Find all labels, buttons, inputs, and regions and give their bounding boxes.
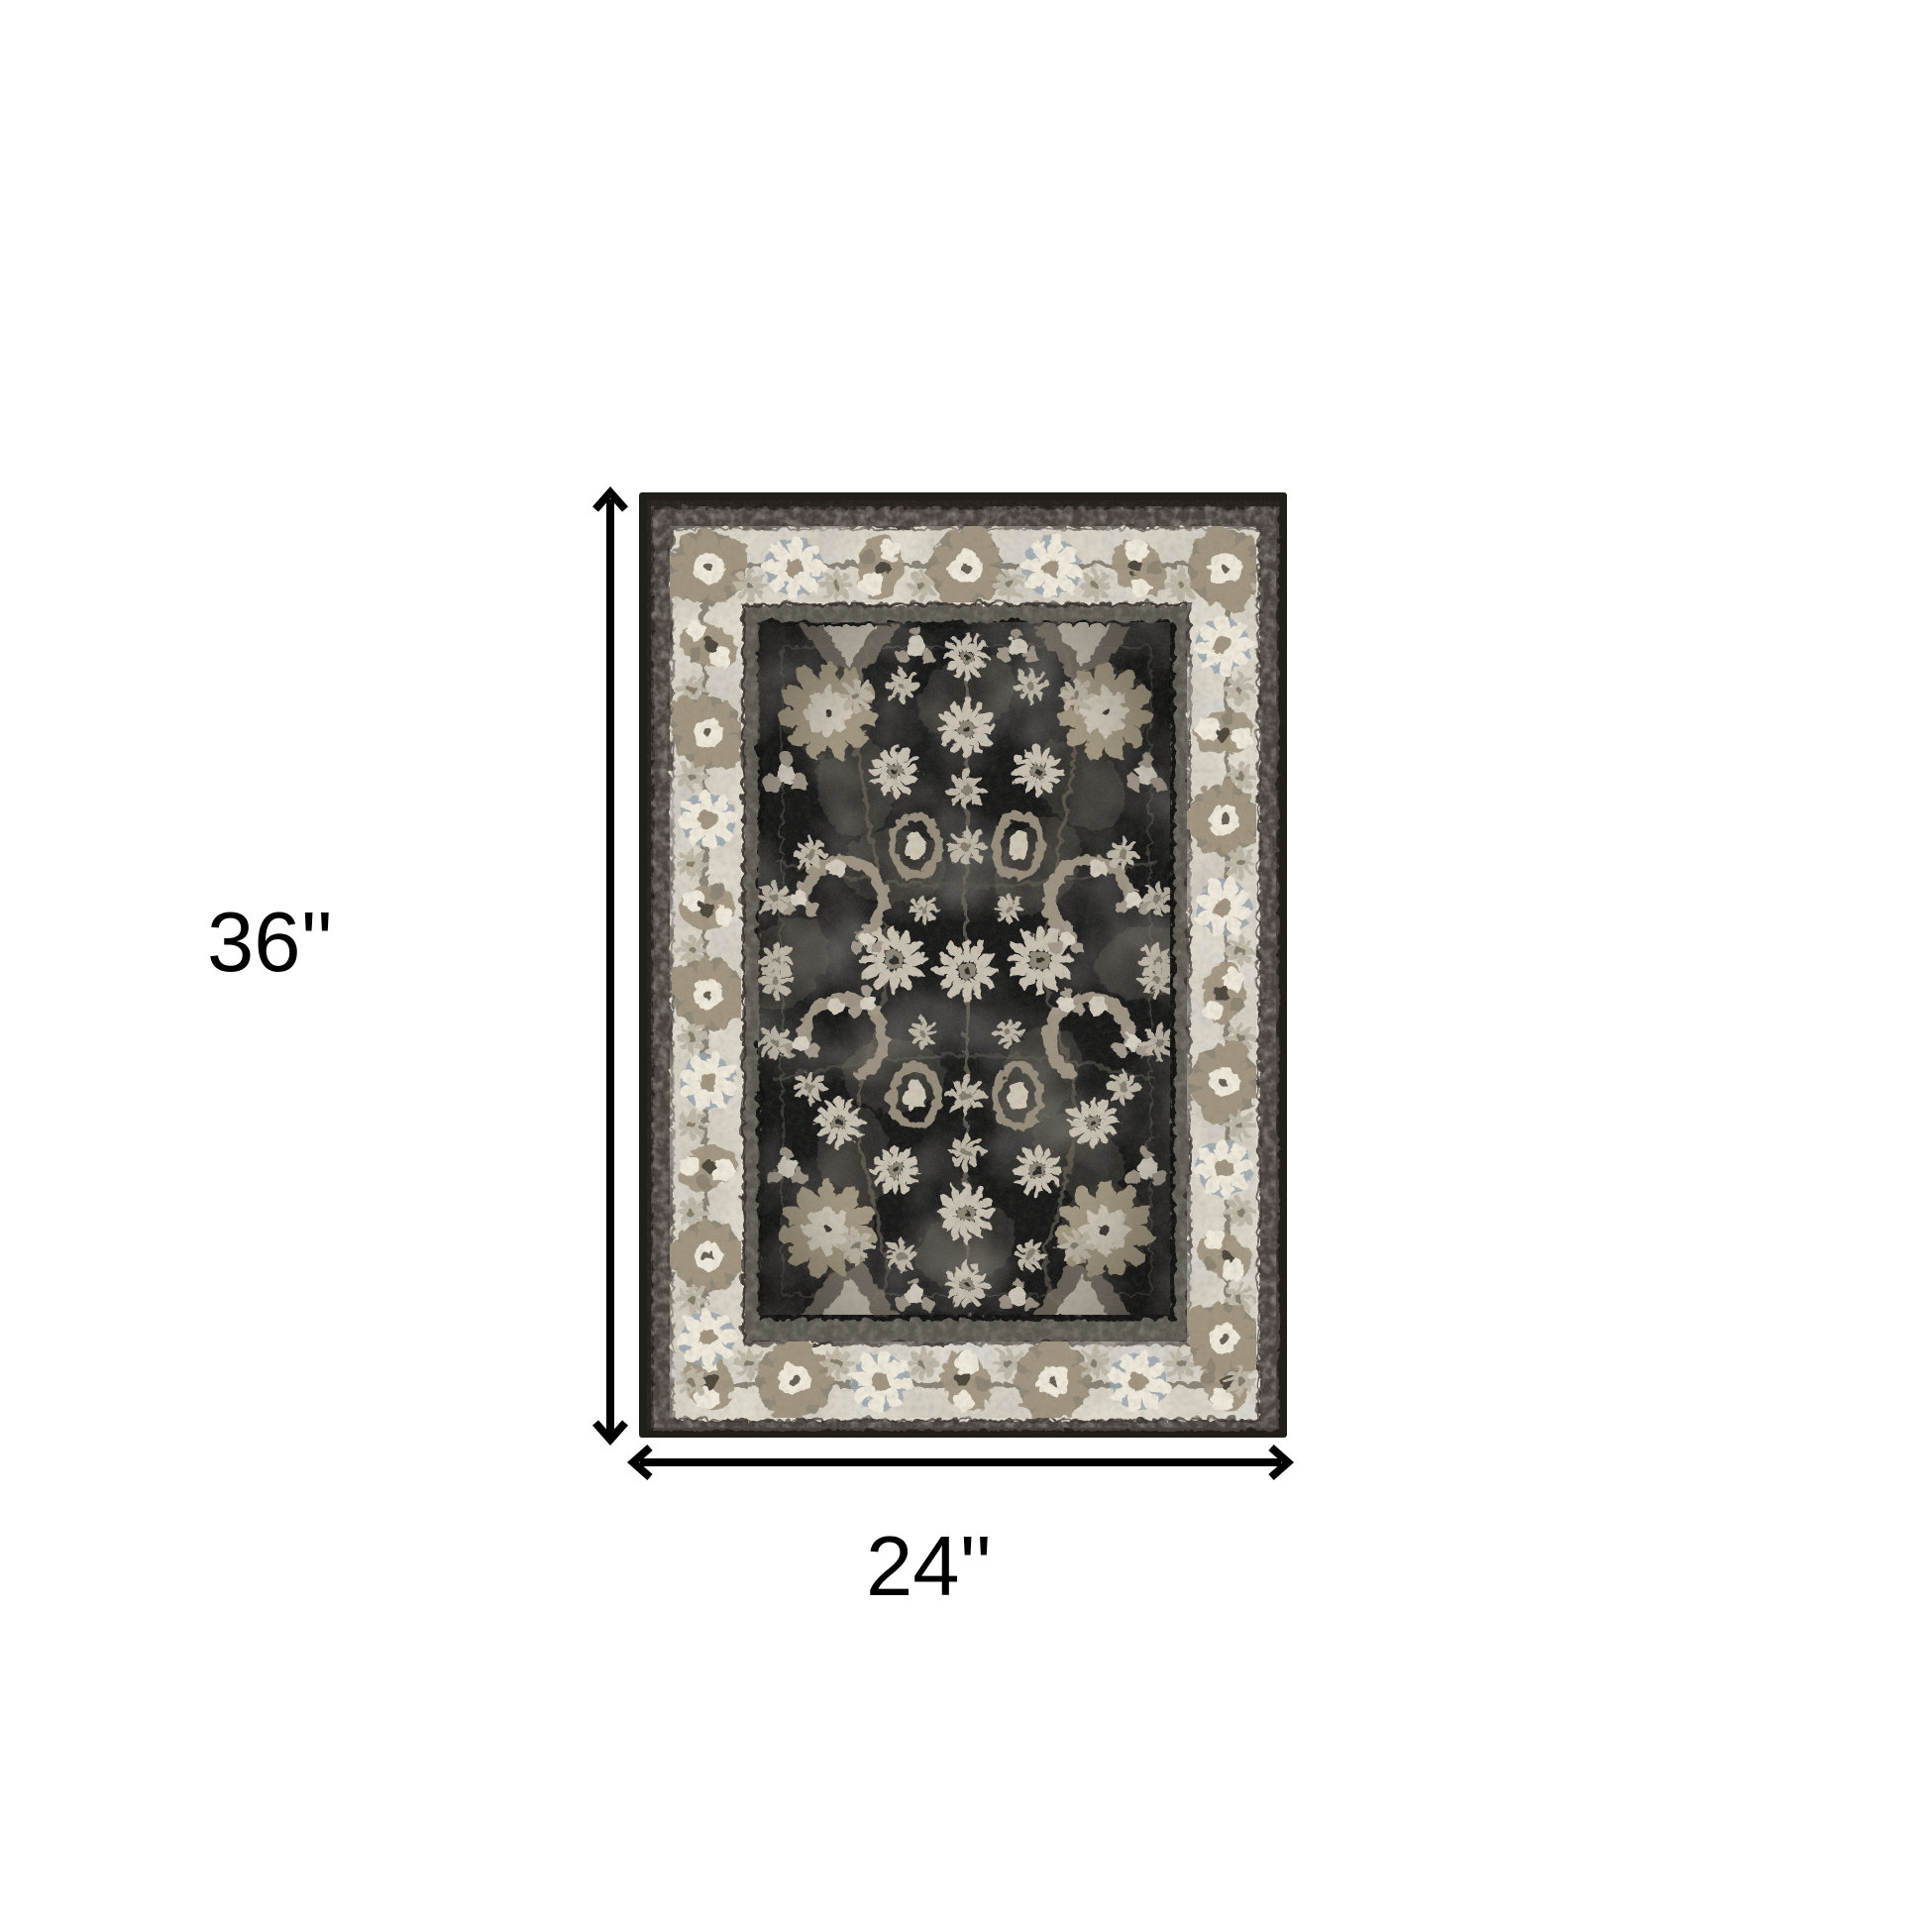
- svg-text:24'': 24'': [866, 1520, 992, 1614]
- svg-text:36'': 36'': [207, 896, 333, 990]
